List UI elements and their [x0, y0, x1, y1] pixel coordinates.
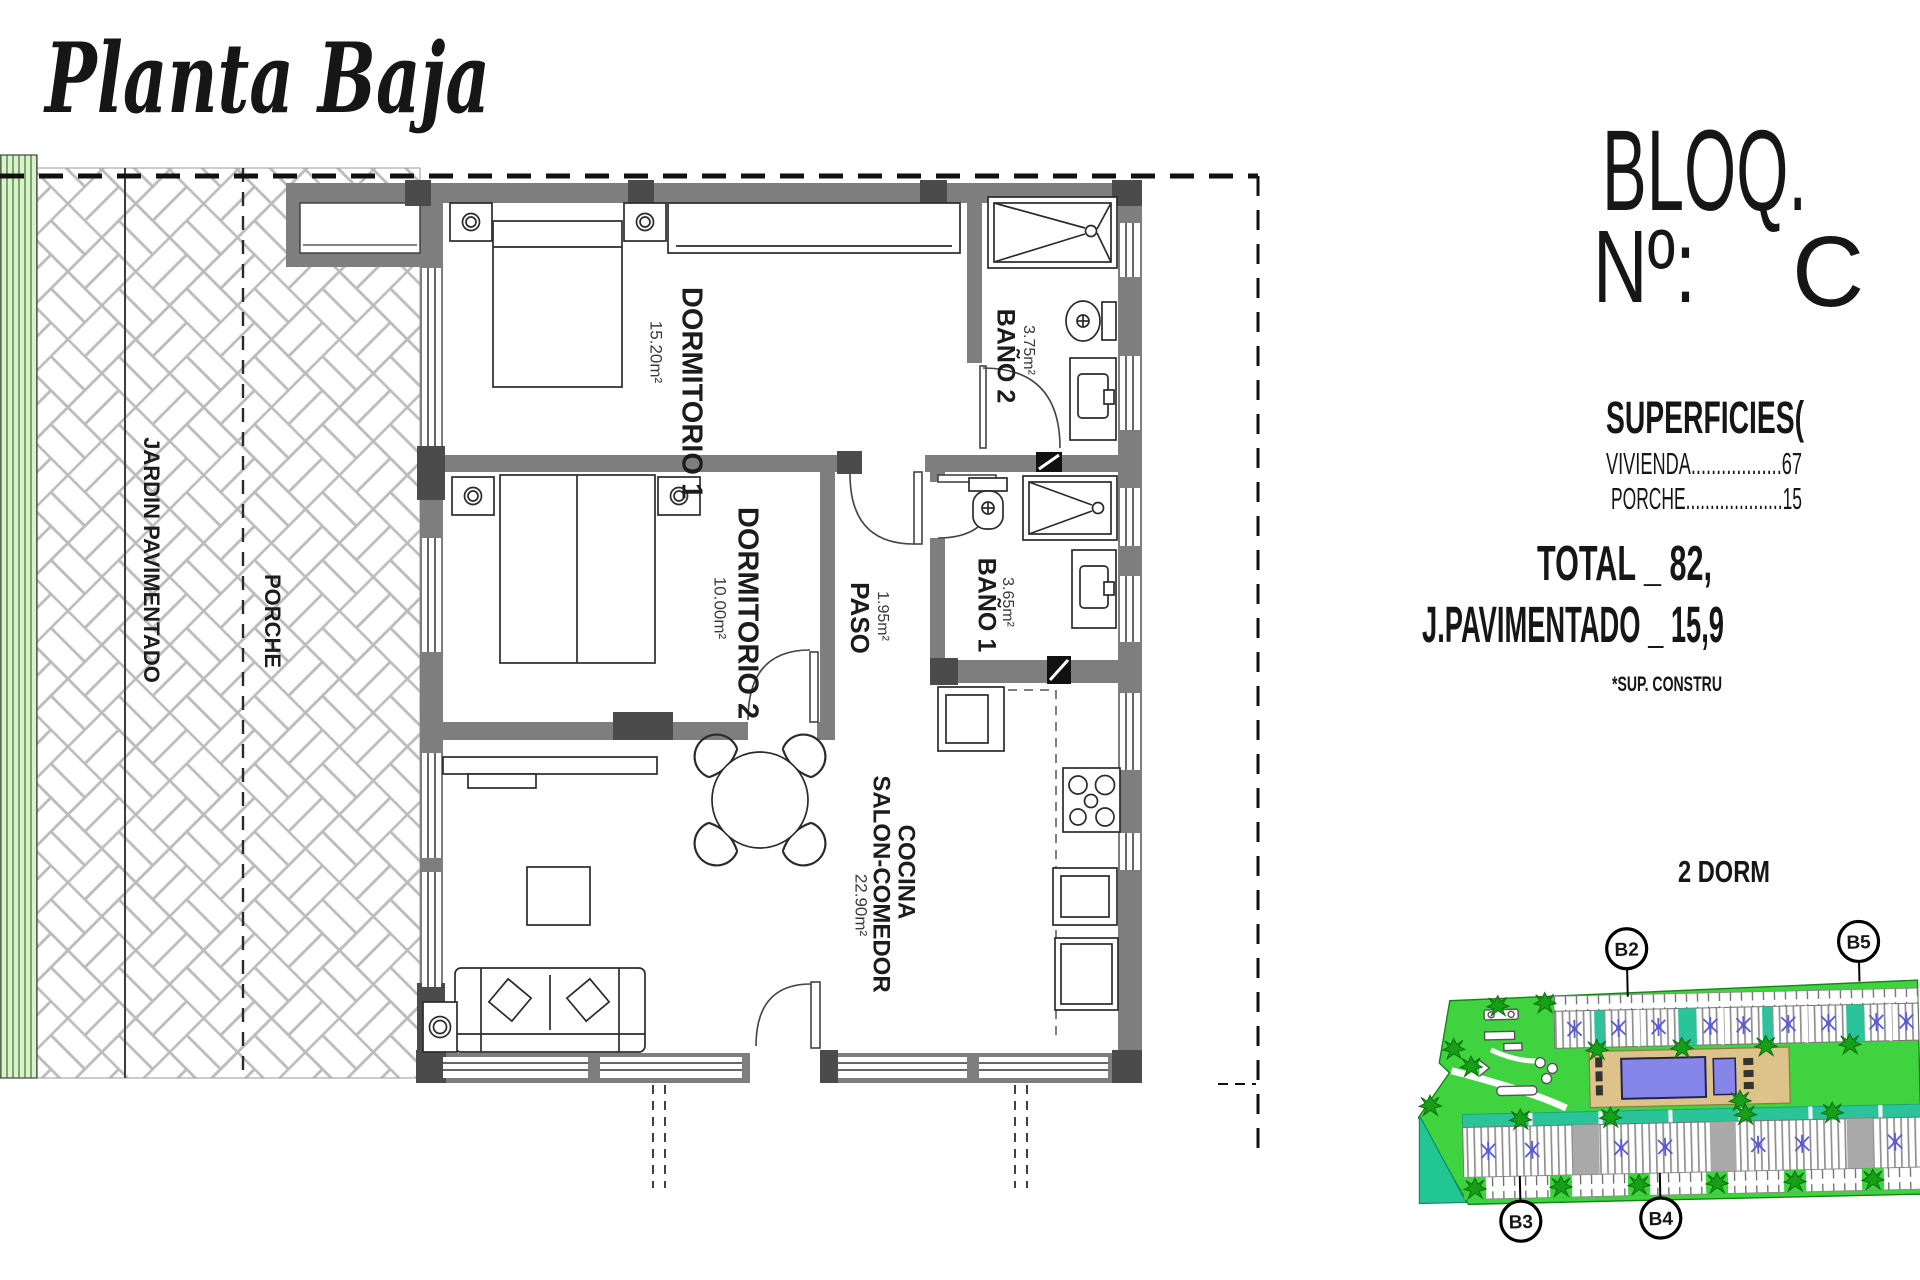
number-label: Nº: [1593, 209, 1696, 324]
room-area-salon: 22.90m² [852, 874, 871, 937]
paved-garden [37, 168, 420, 1078]
room-label-salon-comedor: SALON-COMEDOR [868, 775, 895, 992]
toilet-icon [1066, 301, 1116, 341]
typology-note: 2 DORM [1678, 854, 1770, 889]
stove-icon [1063, 768, 1120, 832]
porche-line: PORCHE....................15 [1611, 481, 1802, 516]
door-leaf [980, 366, 986, 448]
door-leaf [914, 472, 922, 544]
room-label-cocina: COCINA [893, 825, 920, 920]
hedge-strip [0, 155, 37, 1078]
room-area-dormitorio-1: 15.20m² [647, 321, 666, 384]
sink-icon [1072, 550, 1116, 628]
garden-area: JARDIN PAVIMENTADO PORCHE [0, 155, 420, 1078]
room-area-bano-2: 3.75m² [1020, 325, 1037, 375]
room-label-dormitorio-2: DORMITORIO 2 [731, 507, 763, 719]
lower-units-row [1462, 1104, 1920, 1199]
vivienda-line: VIVIENDA..................67 [1606, 446, 1802, 481]
block-label-b2: B2 [1614, 939, 1639, 961]
tv [468, 774, 536, 788]
room-area-bano-1: 3.65m² [999, 577, 1016, 627]
room-area-dormitorio-2: 10.00m² [711, 577, 730, 640]
sofa [455, 968, 645, 1052]
shower-icon [1023, 476, 1117, 540]
room-label-dormitorio-1: DORMITORIO 1 [675, 287, 707, 499]
pool [1589, 1047, 1790, 1108]
coffee-table [527, 867, 590, 925]
sup-construida-note: *SUP. CONSTRU [1612, 673, 1722, 696]
washing-machine [423, 1002, 457, 1052]
j-pavimentado-line: J.PAVIMENTADO _ 15,9 [1422, 596, 1724, 653]
toilet-icon [969, 478, 1007, 529]
superficies-heading: SUPERFICIES( [1606, 392, 1804, 443]
room-label-bano-1: BAÑO 1 [972, 558, 1002, 653]
block-label-b3: B3 [1508, 1212, 1533, 1234]
page: Planta Baja JARDIN PAVIMENTADO PORCHE [0, 0, 1920, 1280]
label-jardin-pavimentado: JARDIN PAVIMENTADO [139, 437, 164, 683]
shower-icon [988, 197, 1117, 268]
label-porche: PORCHE [260, 574, 285, 668]
sink-icon [1070, 358, 1116, 440]
block-label-b4: B4 [1648, 1209, 1673, 1231]
total-line: TOTAL _ 82, [1537, 537, 1712, 591]
page-title: Planta Baja [43, 22, 490, 135]
entry-door-leaf [811, 982, 820, 1048]
floor-plan-canvas: Planta Baja JARDIN PAVIMENTADO PORCHE [0, 0, 1920, 1280]
room-label-paso: PASO [845, 582, 875, 654]
number-value: C [1792, 216, 1864, 328]
door-leaf [810, 652, 818, 722]
upper-units-row [1554, 988, 1919, 1048]
tv-unit [443, 757, 657, 774]
block-label-b5: B5 [1846, 932, 1871, 954]
room-label-bano-2: BAÑO 2 [991, 309, 1021, 403]
room-area-paso: 1.95m² [874, 591, 891, 641]
